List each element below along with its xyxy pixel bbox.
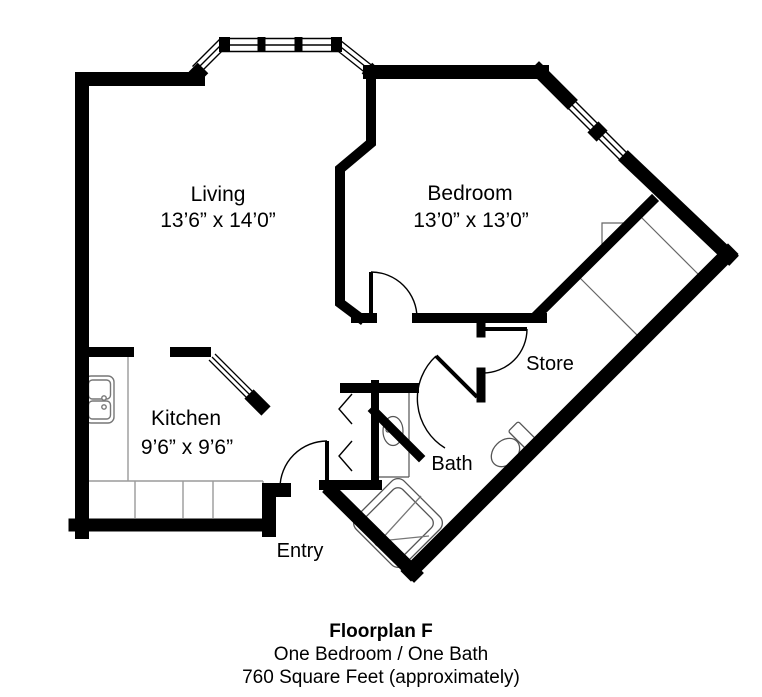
bath-label: Bath	[431, 453, 472, 475]
closet-rod-lines	[580, 216, 704, 336]
interior-walls	[85, 74, 652, 496]
bay-window	[193, 37, 377, 77]
kitchen-sink-icon	[85, 376, 114, 423]
floorplan-page: Living 13’6” x 14’0” Bedroom 13’0” x 13’…	[0, 0, 762, 697]
bedroom-door	[371, 272, 417, 318]
bath-door-arc	[417, 356, 445, 448]
bath-door-leaf	[436, 356, 477, 397]
caption-line2: One Bedroom / One Bath	[274, 644, 488, 665]
store-door	[483, 329, 527, 373]
entry-label: Entry	[277, 540, 324, 562]
caption-title: Floorplan F	[329, 621, 432, 642]
bedroom-dimensions: 13’0” x 13’0”	[413, 209, 529, 232]
store-hall-wall	[537, 201, 652, 315]
kitchen-dimensions: 9’6” x 9’6”	[141, 436, 233, 459]
kitchen-pass-window	[209, 354, 266, 411]
living-dimensions: 13’6” x 14’0”	[160, 209, 276, 232]
floorplan-drawing: Living 13’6” x 14’0” Bedroom 13’0” x 13’…	[0, 0, 762, 697]
bedroom-door-arc	[371, 272, 417, 318]
living-bedroom-divider	[340, 74, 371, 318]
closet-bifold-doors	[339, 394, 352, 471]
caption-line3: 760 Square Feet (approximately)	[242, 667, 520, 688]
store-door-arc	[483, 329, 527, 373]
living-label: Living	[191, 183, 246, 206]
store-label: Store	[526, 353, 574, 375]
kitchen-label: Kitchen	[151, 407, 221, 430]
bedroom-label: Bedroom	[427, 182, 512, 205]
bath-door	[417, 356, 477, 448]
